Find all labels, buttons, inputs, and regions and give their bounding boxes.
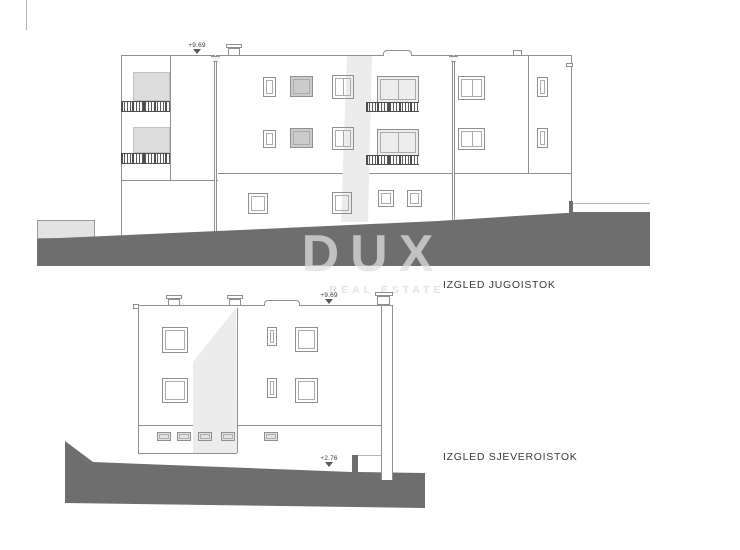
balcony-door [377, 129, 419, 156]
basement-vent [177, 432, 191, 441]
facade-joint-line [170, 56, 171, 180]
floor-line [218, 173, 571, 174]
roof-curb [264, 300, 300, 306]
window [267, 327, 277, 346]
level-value: +9.69 [313, 292, 345, 299]
window [295, 378, 318, 403]
window [537, 77, 548, 97]
fence-line [573, 203, 650, 204]
level-marker: +9.69 [313, 292, 345, 304]
balcony-railing [366, 155, 419, 165]
roof-line [121, 55, 571, 56]
architectural-drawing-sheet: +9.69 DUX REAL ESTATE IZGLED JUGOISTOK [0, 0, 740, 550]
facade-joint-line [237, 308, 238, 453]
elevation-label: IZGLED SJEVEROISTOK [443, 451, 577, 463]
balcony-panel [133, 127, 170, 153]
window [248, 193, 268, 214]
window [537, 128, 548, 148]
basement-vent [221, 432, 235, 441]
window [407, 190, 422, 207]
window [267, 378, 277, 398]
window [295, 327, 318, 352]
balcony-railing [366, 102, 419, 112]
balcony-door [377, 76, 419, 103]
base-line [138, 453, 237, 454]
basement-vent [157, 432, 171, 441]
basement-vent [264, 432, 278, 441]
rain-funnel [211, 56, 220, 62]
facade-right-edge [571, 55, 572, 212]
roof-curb [383, 50, 412, 56]
window-casement [458, 76, 485, 100]
basement-vent [198, 432, 212, 441]
window [263, 77, 276, 97]
window [162, 327, 188, 353]
floor-line [138, 425, 381, 426]
facade-vent [566, 63, 573, 67]
chimney [377, 296, 390, 305]
facade-left-edge [138, 305, 139, 453]
facade-left-edge [121, 55, 122, 237]
balcony-railing [121, 101, 170, 112]
sheet-edge-line [26, 0, 27, 30]
downpipe [214, 55, 217, 232]
side-wall-section [381, 305, 393, 480]
marker-triangle-icon [325, 462, 333, 467]
chimney [228, 48, 240, 56]
balcony-railing [121, 153, 170, 164]
chimney [168, 299, 180, 306]
chimney [229, 299, 241, 306]
window-shaded [290, 128, 313, 148]
window [332, 192, 352, 214]
marker-triangle-icon [325, 299, 333, 304]
fence-line [358, 455, 381, 456]
window [263, 130, 276, 148]
window-casement [458, 128, 485, 150]
marker-triangle-icon [193, 49, 201, 54]
watermark-text: DUX [299, 228, 447, 280]
wing-base-line [121, 180, 218, 181]
window [162, 378, 188, 403]
chimney [513, 50, 522, 56]
downpipe [452, 55, 455, 220]
gutter-spout [133, 304, 139, 309]
level-value: +2.76 [313, 455, 345, 462]
facade-joint-line [528, 56, 529, 173]
window-casement [332, 75, 354, 99]
window-shaded [290, 76, 313, 97]
terrain-section [65, 441, 425, 508]
rain-funnel [449, 56, 458, 62]
level-marker: +9.69 [181, 42, 213, 54]
retaining-wall [37, 220, 95, 239]
level-marker: +2.76 [313, 455, 345, 467]
level-value: +9.69 [181, 42, 213, 49]
window [378, 190, 394, 207]
window-casement [332, 127, 354, 150]
balcony-panel [133, 72, 170, 101]
elevation-label: IZGLED JUGOISTOK [443, 279, 556, 291]
